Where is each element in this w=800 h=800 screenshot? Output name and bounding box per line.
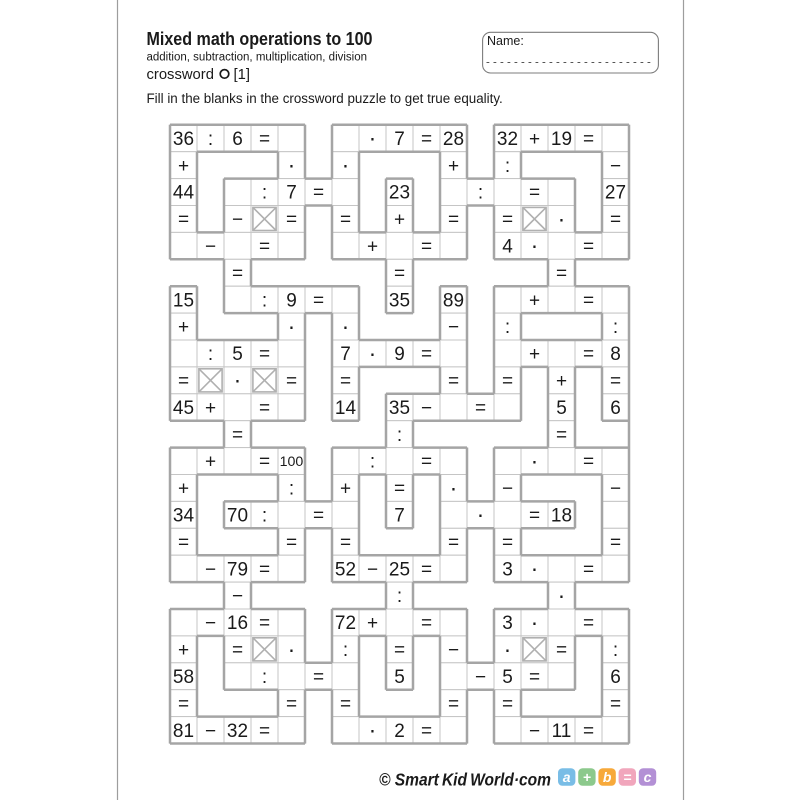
svg-text:19: 19 [551, 129, 572, 150]
svg-text:© Smart Kid World·com: © Smart Kid World·com [379, 770, 551, 790]
svg-text:+: + [529, 290, 540, 311]
svg-text:=: = [340, 533, 351, 554]
svg-text:−: − [502, 479, 513, 500]
svg-text:6: 6 [610, 398, 621, 419]
svg-text:=: = [529, 183, 540, 204]
svg-text:=: = [232, 640, 243, 661]
svg-text:+: + [583, 769, 591, 785]
svg-text::: : [505, 317, 510, 338]
svg-text:14: 14 [335, 398, 357, 419]
svg-text:+: + [178, 479, 189, 500]
svg-text:3: 3 [502, 613, 513, 634]
svg-text:=: = [583, 452, 594, 473]
svg-text:=: = [583, 290, 594, 311]
svg-text:crossword: crossword [147, 67, 214, 83]
svg-text:=: = [610, 694, 621, 715]
svg-text:=: = [421, 237, 432, 258]
svg-text:=: = [286, 210, 297, 231]
svg-text::: : [262, 290, 267, 311]
svg-text:27: 27 [605, 183, 626, 204]
svg-text:4: 4 [502, 237, 513, 258]
svg-text:=: = [259, 344, 270, 365]
svg-text:−: − [205, 559, 216, 580]
svg-text:16: 16 [227, 613, 248, 634]
svg-text:=: = [394, 640, 405, 661]
svg-text:=: = [313, 290, 324, 311]
svg-text:=: = [556, 263, 567, 284]
svg-text:44: 44 [173, 183, 195, 204]
svg-text:5: 5 [394, 667, 405, 688]
svg-text:=: = [259, 613, 270, 634]
svg-text::: : [262, 506, 267, 527]
svg-text::: : [397, 425, 402, 446]
svg-text:5: 5 [556, 398, 567, 419]
svg-text:6: 6 [610, 667, 621, 688]
svg-text:=: = [178, 371, 189, 392]
svg-text:9: 9 [286, 290, 297, 311]
svg-text:=: = [313, 506, 324, 527]
svg-text:=: = [529, 506, 540, 527]
svg-text:c: c [644, 769, 652, 785]
svg-text:−: − [610, 156, 621, 177]
svg-text:=: = [610, 371, 621, 392]
svg-text:5: 5 [502, 667, 513, 688]
svg-text:=: = [259, 398, 270, 419]
svg-text::: : [370, 452, 375, 473]
svg-text:Mixed math operations to 100: Mixed math operations to 100 [147, 29, 373, 49]
svg-text:·: · [288, 152, 296, 178]
svg-text:34: 34 [173, 506, 195, 527]
svg-text:=: = [313, 183, 324, 204]
svg-text:·: · [342, 313, 350, 339]
svg-text:=: = [313, 667, 324, 688]
svg-text:−: − [610, 479, 621, 500]
svg-text:·: · [531, 609, 539, 635]
svg-text:−: − [421, 398, 432, 419]
svg-text:−: − [205, 237, 216, 258]
svg-text:=: = [286, 694, 297, 715]
svg-text:=: = [583, 613, 594, 634]
svg-text:11: 11 [552, 721, 572, 742]
svg-text:·: · [558, 205, 566, 231]
svg-text:=: = [448, 210, 459, 231]
svg-text:·: · [531, 232, 539, 258]
svg-text:·: · [477, 501, 485, 527]
svg-text:·: · [369, 125, 377, 151]
svg-text::: : [208, 129, 213, 150]
svg-text:·: · [504, 636, 512, 662]
svg-text:=: = [583, 559, 594, 580]
svg-text:·: · [234, 367, 242, 393]
svg-text:45: 45 [173, 398, 194, 419]
svg-text:72: 72 [335, 613, 356, 634]
svg-text:·: · [369, 340, 377, 366]
svg-text:=: = [502, 371, 513, 392]
svg-text:addition, subtraction, multipl: addition, subtraction, multiplication, d… [147, 52, 368, 64]
svg-text:36: 36 [173, 129, 194, 150]
svg-text:32: 32 [227, 721, 248, 742]
svg-text:−: − [205, 613, 216, 634]
svg-text::: : [343, 640, 348, 661]
svg-text:=: = [286, 533, 297, 554]
svg-text:·: · [369, 716, 377, 742]
svg-text:7: 7 [394, 129, 405, 150]
svg-text:89: 89 [443, 290, 464, 311]
svg-text:=: = [340, 210, 351, 231]
svg-text:·: · [450, 474, 458, 500]
svg-text:=: = [259, 237, 270, 258]
svg-text::: : [397, 586, 402, 607]
svg-text:=: = [340, 694, 351, 715]
svg-text:·: · [558, 582, 566, 608]
svg-text:Name:: Name: [487, 34, 524, 48]
svg-text:+: + [448, 156, 459, 177]
svg-text:·: · [342, 152, 350, 178]
svg-text:=: = [421, 129, 432, 150]
svg-text:·: · [531, 555, 539, 581]
svg-text:=: = [502, 694, 513, 715]
svg-text:=: = [232, 263, 243, 284]
svg-text:100: 100 [280, 454, 304, 470]
svg-text:=: = [502, 210, 513, 231]
svg-text:18: 18 [551, 506, 572, 527]
svg-text:[1]: [1] [234, 67, 250, 83]
svg-text:9: 9 [394, 344, 405, 365]
svg-text:32: 32 [497, 129, 518, 150]
svg-text::: : [505, 156, 510, 177]
svg-text:+: + [205, 398, 216, 419]
svg-text:=: = [556, 425, 567, 446]
svg-text:=: = [421, 452, 432, 473]
svg-text:+: + [367, 613, 378, 634]
svg-text:−: − [475, 667, 486, 688]
svg-text::: : [262, 667, 267, 688]
svg-text:=: = [448, 694, 459, 715]
svg-text:70: 70 [227, 506, 248, 527]
svg-text:+: + [178, 156, 189, 177]
svg-text:=: = [610, 210, 621, 231]
svg-text:=: = [232, 425, 243, 446]
svg-text:=: = [448, 371, 459, 392]
svg-text:2: 2 [394, 721, 405, 742]
svg-text:a: a [563, 769, 571, 785]
svg-text:=: = [394, 479, 405, 500]
svg-text:+: + [178, 640, 189, 661]
svg-text:−: − [232, 210, 243, 231]
svg-text:79: 79 [227, 559, 248, 580]
svg-text:=: = [448, 533, 459, 554]
svg-text:=: = [583, 344, 594, 365]
svg-text:3: 3 [502, 559, 513, 580]
svg-text:5: 5 [232, 344, 243, 365]
svg-text:58: 58 [173, 667, 194, 688]
svg-text:=: = [259, 559, 270, 580]
svg-text:=: = [529, 667, 540, 688]
svg-text:=: = [583, 237, 594, 258]
svg-text::: : [613, 640, 618, 661]
svg-text:7: 7 [286, 183, 297, 204]
svg-text:25: 25 [389, 559, 410, 580]
svg-text:−: − [367, 559, 378, 580]
svg-text:−: − [232, 586, 243, 607]
svg-text::: : [208, 344, 213, 365]
svg-text:·: · [288, 636, 296, 662]
svg-text:+: + [367, 237, 378, 258]
svg-text:=: = [178, 694, 189, 715]
svg-text:b: b [603, 769, 612, 785]
svg-text:15: 15 [173, 290, 194, 311]
svg-text:+: + [340, 479, 351, 500]
svg-text:−: − [448, 317, 459, 338]
svg-text:+: + [529, 129, 540, 150]
svg-text::: : [613, 317, 618, 338]
svg-text:=: = [259, 452, 270, 473]
svg-text:·: · [288, 313, 296, 339]
svg-text::: : [262, 183, 267, 204]
svg-text:7: 7 [394, 506, 405, 527]
svg-text:=: = [421, 613, 432, 634]
svg-text::: : [478, 183, 483, 204]
svg-text:=: = [421, 344, 432, 365]
svg-text:=: = [394, 263, 405, 284]
svg-text:=: = [259, 721, 270, 742]
svg-text:35: 35 [389, 290, 410, 311]
svg-text:52: 52 [335, 559, 356, 580]
svg-text:−: − [448, 640, 459, 661]
svg-text:+: + [529, 344, 540, 365]
svg-text:+: + [394, 210, 405, 231]
svg-text:=: = [178, 210, 189, 231]
svg-text:23: 23 [389, 183, 410, 204]
svg-text:7: 7 [340, 344, 351, 365]
svg-text:=: = [556, 640, 567, 661]
svg-text:−: − [205, 721, 216, 742]
svg-text:+: + [178, 317, 189, 338]
svg-text:=: = [421, 721, 432, 742]
svg-text:+: + [556, 371, 567, 392]
svg-text:=: = [583, 129, 594, 150]
svg-text:+: + [205, 452, 216, 473]
svg-text:8: 8 [610, 344, 621, 365]
svg-text:=: = [421, 559, 432, 580]
svg-text:35: 35 [389, 398, 410, 419]
svg-text:=: = [340, 371, 351, 392]
svg-text:=: = [286, 371, 297, 392]
svg-text:Fill in the blanks in the cros: Fill in the blanks in the crossword puzz… [147, 91, 503, 106]
svg-text:=: = [610, 533, 621, 554]
svg-text:81: 81 [173, 721, 194, 742]
svg-text:·: · [531, 447, 539, 473]
svg-text:=: = [623, 769, 631, 785]
svg-text:6: 6 [232, 129, 243, 150]
svg-text:=: = [583, 721, 594, 742]
svg-text:=: = [259, 129, 270, 150]
svg-text::: : [289, 479, 294, 500]
svg-text:28: 28 [443, 129, 464, 150]
svg-text:=: = [475, 398, 486, 419]
svg-text:=: = [178, 533, 189, 554]
svg-text:−: − [529, 721, 540, 742]
svg-text:=: = [502, 533, 513, 554]
